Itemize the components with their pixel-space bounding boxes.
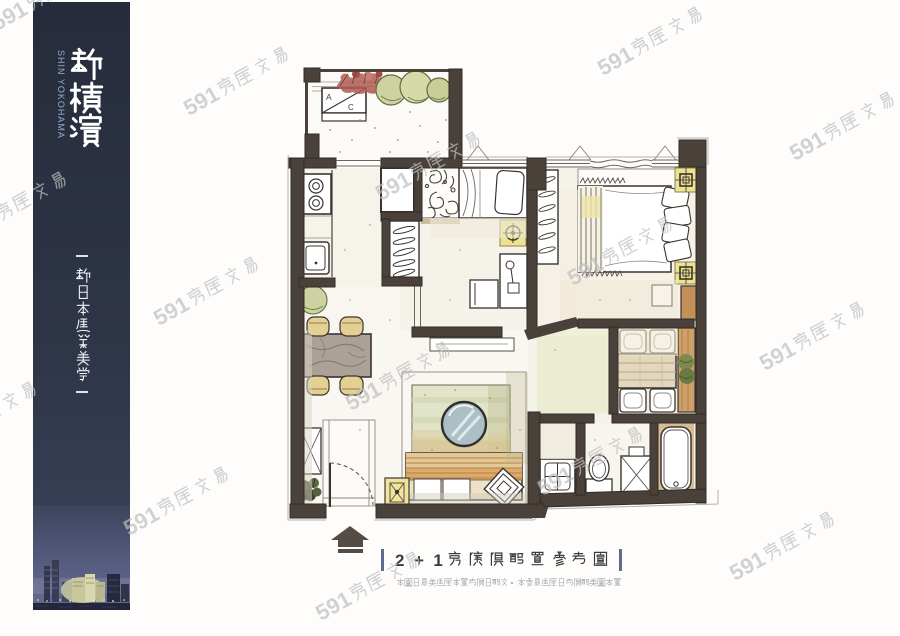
- svg-text:2 + 1: 2 + 1: [395, 551, 445, 570]
- svg-text:C: C: [348, 103, 354, 112]
- svg-text:A: A: [326, 92, 332, 102]
- svg-text:SHIN YOKOHAMA: SHIN YOKOHAMA: [56, 50, 66, 139]
